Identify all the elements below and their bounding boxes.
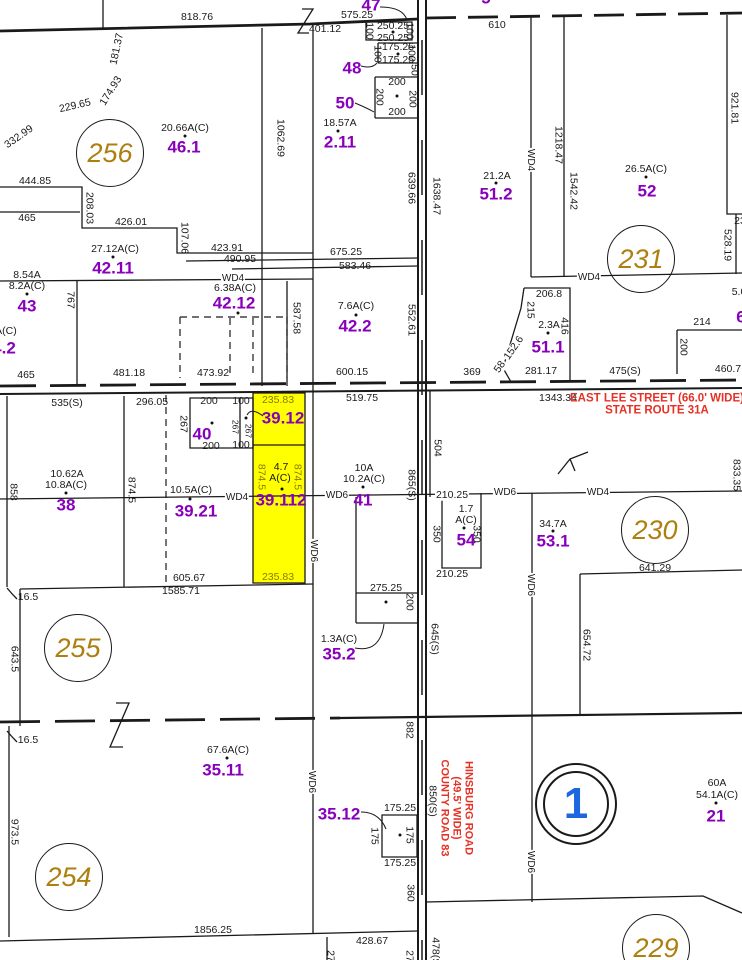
parcel-lines — [0, 0, 742, 960]
parcel-map: 2562312302552542291 818.76575.25401.1261… — [0, 0, 742, 960]
leader-lines — [247, 7, 407, 829]
break-and-tie-symbols — [7, 9, 588, 747]
parcel-boundary-lines — [0, 0, 742, 960]
roads — [0, 0, 742, 960]
dashed-parcel-lines — [166, 317, 287, 587]
